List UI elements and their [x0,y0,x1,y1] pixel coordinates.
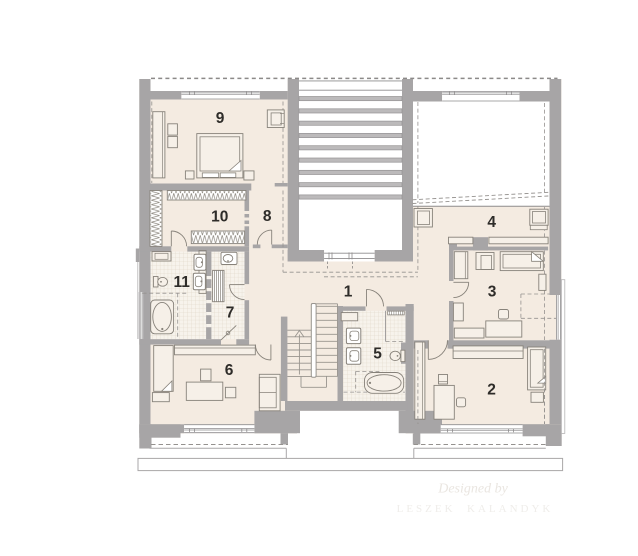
svg-text:LESZEK KALANDYK: LESZEK KALANDYK [397,503,554,515]
svg-text:6: 6 [225,362,234,379]
svg-text:7: 7 [226,305,235,322]
svg-text:8: 8 [263,208,272,225]
svg-text:11: 11 [174,274,191,291]
svg-text:10: 10 [211,209,228,226]
svg-text:Designed by: Designed by [437,482,508,497]
svg-text:5: 5 [373,345,382,362]
svg-text:2: 2 [487,381,496,398]
svg-text:9: 9 [216,110,225,127]
svg-text:4: 4 [487,214,496,231]
svg-text:3: 3 [488,283,497,300]
svg-text:1: 1 [344,283,353,300]
